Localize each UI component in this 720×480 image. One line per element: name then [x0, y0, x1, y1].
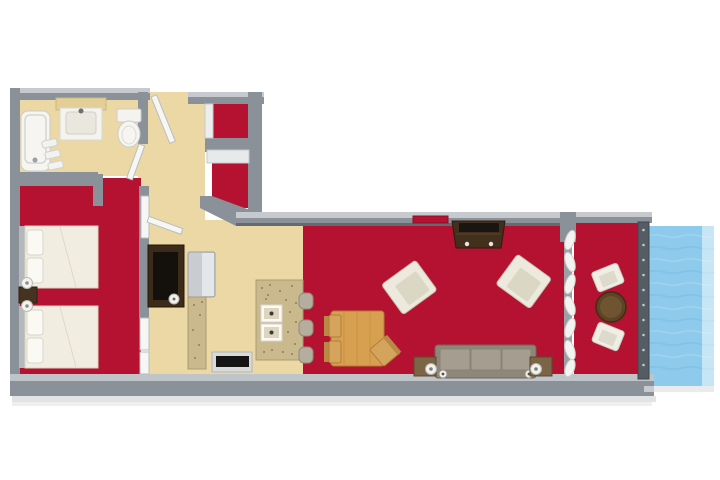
wall-bottom-face [10, 374, 654, 382]
toilet-tank [117, 109, 141, 122]
vanity-sink [66, 112, 96, 134]
table-lamp-2-finial [25, 304, 29, 308]
wall-vestibule-stub [93, 174, 103, 206]
chair-1-seat [329, 315, 341, 337]
shadow-water [644, 386, 714, 392]
water-area [644, 226, 714, 386]
floor-plan-canvas [0, 0, 720, 480]
living-lamp-2-dot [534, 367, 538, 371]
hall-floor [148, 92, 205, 226]
shadow-bottom [12, 396, 656, 402]
armoire-lamp-dot [173, 298, 176, 301]
wall-art [413, 216, 448, 223]
kitchen-counter [188, 297, 206, 369]
vestibule-door [141, 196, 149, 238]
shadow-bottom-soft [12, 402, 652, 406]
refrigerator-door [202, 253, 214, 296]
sink-drain-2 [270, 331, 274, 335]
bed-2-headboard [19, 306, 25, 368]
bedroom-door-leaf-2 [140, 352, 149, 374]
chair-2-back [324, 342, 329, 362]
bed-2-pillow-b [27, 338, 43, 363]
lower-closet-shelf [207, 150, 249, 163]
bar-stool-1 [299, 293, 313, 309]
stove [216, 356, 249, 367]
sofa-cushion-3 [502, 349, 531, 370]
balcony-table-top [600, 296, 622, 318]
wall-top-left-face [10, 88, 150, 93]
chair-2-seat [329, 341, 341, 363]
bathtub-drain [33, 158, 38, 163]
television [459, 223, 499, 232]
bar-stool-3 [299, 347, 313, 363]
console-knob-2 [489, 242, 493, 246]
upper-closet-shelf [205, 104, 213, 138]
wall-closet-right [248, 92, 262, 214]
living-lamp-1-dot [429, 367, 433, 371]
toilet-bowl [118, 121, 140, 147]
sofa-cushion-2 [471, 349, 501, 370]
dining-chair-1 [324, 315, 341, 337]
table-lamp-1-finial [25, 281, 29, 285]
chair-1-back [324, 316, 329, 336]
sofa [435, 345, 536, 378]
floor-plan-image [0, 0, 720, 480]
wall-living-top-face [236, 212, 566, 218]
wall-bath-bedroom [10, 172, 98, 186]
wall-bottom [10, 381, 654, 396]
bed-2-pillow-a [27, 310, 43, 335]
sink-faucet [79, 109, 84, 114]
bed-1-pillow-a [27, 230, 43, 255]
wall-living-top-edge [236, 223, 566, 226]
sofa-cushion-1 [440, 349, 470, 370]
bedroom-door-leaf-1 [140, 318, 149, 350]
tv-armoire-interior [153, 252, 178, 300]
wall-left [10, 88, 20, 396]
sink-drain-1 [270, 312, 274, 316]
console-knob-1 [465, 242, 469, 246]
water-fade [702, 226, 714, 386]
upper-closet-carpet [212, 104, 248, 140]
wall-balcony-top-face [576, 212, 652, 217]
sofa-caster-1-hub [442, 373, 445, 376]
dining-chair-2 [324, 341, 341, 363]
bar-stool-2 [299, 320, 313, 336]
